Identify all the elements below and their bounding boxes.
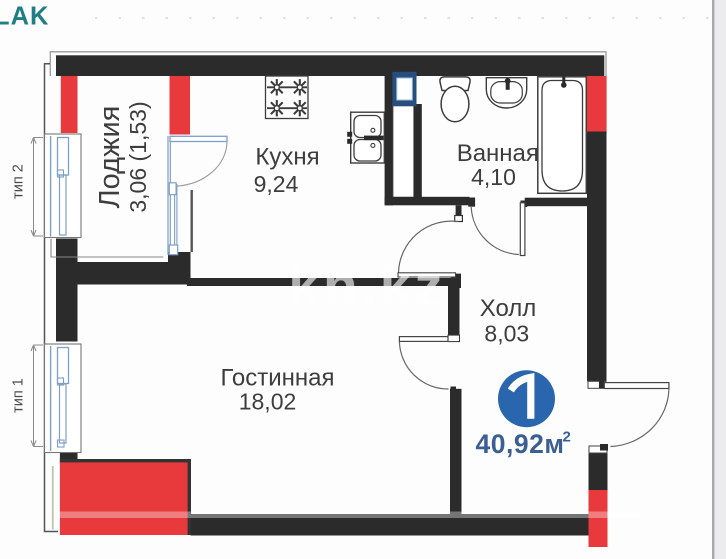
svg-text:Гостинная: Гостинная <box>221 365 335 392</box>
svg-text:18,02: 18,02 <box>239 389 297 415</box>
svg-text:3,06 (1,53): 3,06 (1,53) <box>125 101 151 212</box>
svg-text:2: 2 <box>563 429 571 446</box>
svg-text:LAK: LAK <box>0 3 49 31</box>
svg-text:4,10: 4,10 <box>471 164 516 190</box>
svg-text:9,24: 9,24 <box>254 171 299 197</box>
svg-text:40,92м: 40,92м <box>476 429 565 459</box>
svg-text:Холл: Холл <box>480 295 537 322</box>
svg-text:Ванная: Ванная <box>457 140 539 167</box>
svg-text:Лоджия: Лоджия <box>94 106 126 209</box>
svg-text:8,03: 8,03 <box>484 321 529 347</box>
svg-text:тип 2: тип 2 <box>11 164 27 199</box>
svg-text:Кухня: Кухня <box>255 144 319 171</box>
svg-text:тип 1: тип 1 <box>11 378 27 413</box>
svg-text:kn.kz: kn.kz <box>288 254 446 318</box>
